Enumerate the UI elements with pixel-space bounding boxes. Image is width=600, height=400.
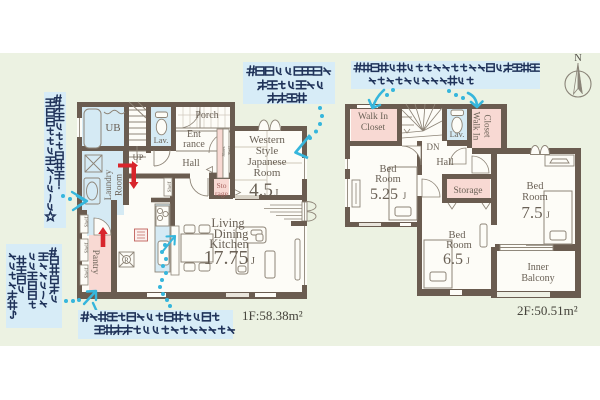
svg-text:J: J xyxy=(251,256,255,267)
svg-text:J: J xyxy=(403,191,407,201)
svg-text:Storage: Storage xyxy=(453,186,482,196)
svg-text:4.5: 4.5 xyxy=(249,180,273,201)
svg-text:Shelf: Shelf xyxy=(85,267,90,278)
svg-text:Room: Room xyxy=(254,167,281,179)
svg-text:Shelf: Shelf xyxy=(227,145,232,154)
svg-text:Room: Room xyxy=(375,174,401,185)
svg-text:Closet: Closet xyxy=(483,114,493,138)
svg-text:Lav.: Lav. xyxy=(450,129,465,139)
svg-text:UB: UB xyxy=(105,122,120,134)
svg-text:Porch: Porch xyxy=(195,110,218,121)
svg-text:Inner: Inner xyxy=(527,262,549,273)
svg-text:Hall: Hall xyxy=(182,158,199,169)
svg-text:R: R xyxy=(124,257,129,265)
svg-text:Laundry: Laundry xyxy=(103,169,113,200)
svg-text:Lav.: Lav. xyxy=(154,135,169,145)
svg-text:Shelf: Shelf xyxy=(85,242,90,253)
svg-text:Shelf: Shelf xyxy=(168,181,173,192)
svg-text:Walk In: Walk In xyxy=(358,112,388,122)
svg-text:rance: rance xyxy=(183,139,205,150)
svg-text:Room: Room xyxy=(114,174,124,196)
svg-text:Closet: Closet xyxy=(361,123,386,133)
svg-text:6.5: 6.5 xyxy=(443,251,463,268)
svg-text:rage: rage xyxy=(215,189,229,198)
svg-text:5.25: 5.25 xyxy=(370,186,398,203)
svg-text:Pantry: Pantry xyxy=(90,250,100,275)
svg-text:Room: Room xyxy=(522,192,548,203)
svg-text:Room: Room xyxy=(446,240,472,251)
svg-text:J: J xyxy=(466,256,470,266)
svg-text:Shelf: Shelf xyxy=(85,216,90,227)
svg-text:17.75: 17.75 xyxy=(204,247,249,269)
svg-text:N: N xyxy=(574,53,582,64)
svg-text:Bed: Bed xyxy=(527,181,545,192)
svg-text:J: J xyxy=(546,210,550,220)
svg-text:Shoes: Shoes xyxy=(221,146,226,156)
svg-text:Hall: Hall xyxy=(436,157,453,168)
svg-text:7.5: 7.5 xyxy=(521,203,542,222)
svg-text:1F:58.38m²: 1F:58.38m² xyxy=(242,308,303,323)
svg-text:Walk In: Walk In xyxy=(472,112,482,141)
svg-text:J: J xyxy=(275,188,279,199)
svg-text:Balcony: Balcony xyxy=(521,273,554,284)
svg-text:DN: DN xyxy=(427,142,440,152)
svg-text:UP: UP xyxy=(133,152,144,162)
svg-text:2F:50.51m²: 2F:50.51m² xyxy=(517,303,578,318)
